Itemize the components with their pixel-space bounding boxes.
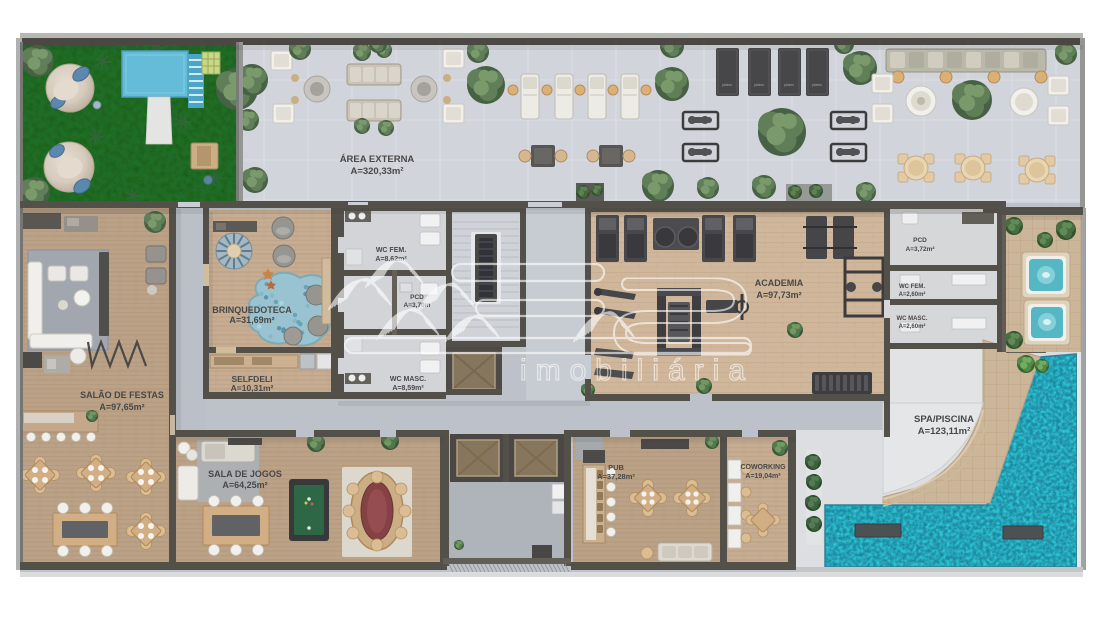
svg-text:imobiliária: imobiliária — [520, 354, 754, 387]
